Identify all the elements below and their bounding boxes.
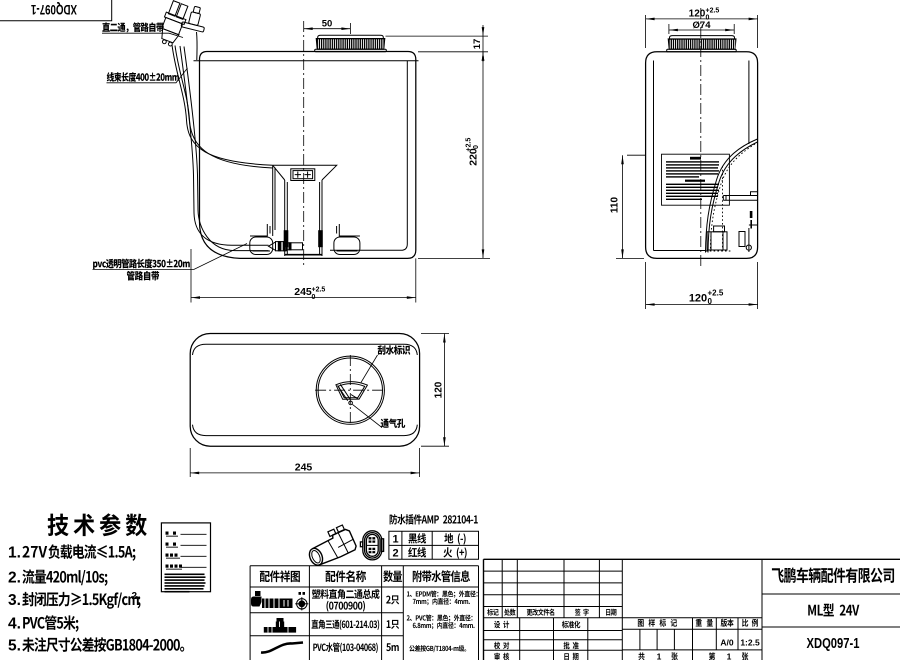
- svg-text:+2.5: +2.5: [466, 138, 473, 152]
- svg-text:120: 120: [434, 381, 445, 398]
- svg-text:17: 17: [472, 39, 483, 50]
- svg-text:0: 0: [708, 297, 713, 306]
- svg-text:1: 1: [657, 652, 662, 660]
- svg-text:XDQ097-1: XDQ097-1: [31, 2, 77, 17]
- svg-text:0: 0: [706, 15, 710, 22]
- svg-text:+2.5: +2.5: [706, 8, 720, 15]
- svg-text:50: 50: [322, 19, 333, 30]
- svg-text:XDQ097-1: XDQ097-1: [807, 636, 860, 652]
- svg-text:0: 0: [473, 145, 480, 149]
- svg-text:1: 1: [727, 652, 732, 660]
- svg-text:120: 120: [689, 9, 706, 20]
- svg-text:110: 110: [610, 196, 621, 213]
- svg-text:+2.5: +2.5: [312, 287, 326, 294]
- svg-text:A/0: A/0: [720, 638, 734, 648]
- svg-text:2: 2: [392, 548, 398, 560]
- svg-text:3.: 3.: [8, 592, 21, 609]
- svg-text:1: 1: [392, 534, 398, 546]
- svg-text:245: 245: [294, 286, 312, 298]
- svg-text:5.: 5.: [8, 638, 21, 655]
- svg-text:120: 120: [689, 293, 707, 305]
- svg-text:4.: 4.: [8, 616, 21, 633]
- svg-text:2.: 2.: [8, 570, 21, 587]
- svg-text:1:2.5: 1:2.5: [740, 638, 760, 648]
- svg-text:0: 0: [312, 294, 316, 301]
- svg-text:2: 2: [132, 591, 138, 602]
- svg-text:1.: 1.: [8, 545, 21, 562]
- svg-text:245: 245: [295, 462, 313, 474]
